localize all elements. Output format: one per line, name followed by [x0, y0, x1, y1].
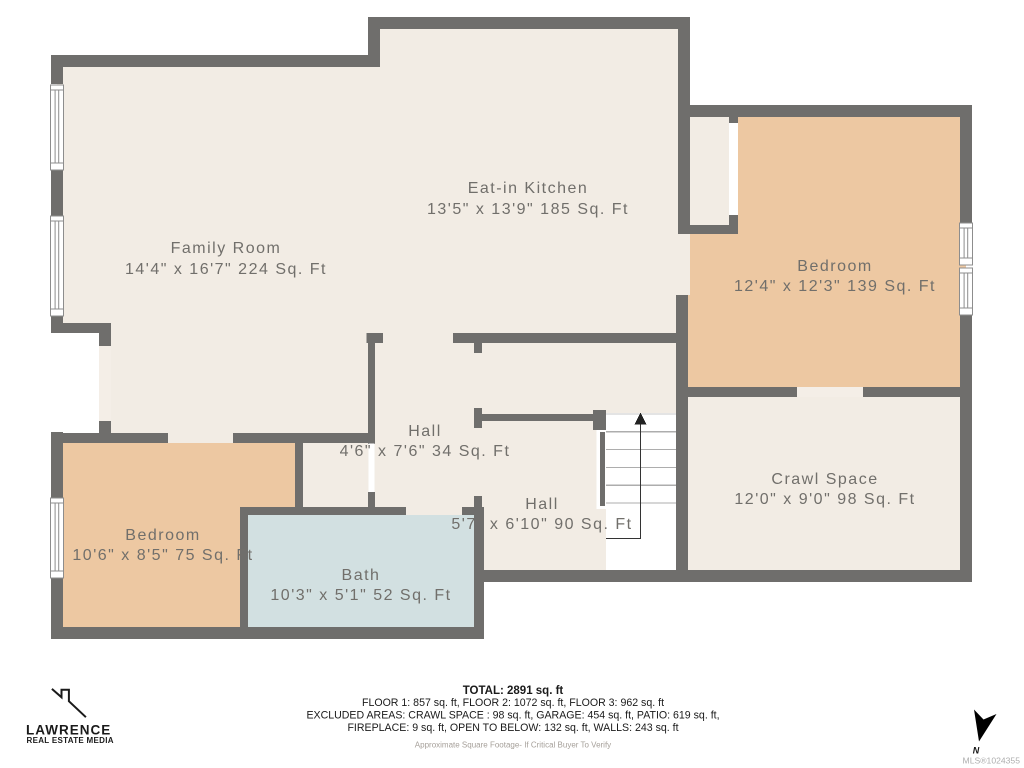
svg-text:12'4" x 12'3" 139 Sq. Ft: 12'4" x 12'3" 139 Sq. Ft — [734, 278, 936, 295]
svg-text:Eat-in Kitchen: Eat-in Kitchen — [468, 180, 589, 197]
svg-text:MLS®1024355: MLS®1024355 — [963, 756, 1021, 766]
svg-text:EXCLUDED AREAS: CRAWL SPACE :: EXCLUDED AREAS: CRAWL SPACE : 98 sq. ft,… — [306, 710, 719, 722]
svg-text:10'3" x 5'1" 52 Sq. Ft: 10'3" x 5'1" 52 Sq. Ft — [270, 587, 451, 604]
svg-text:Bedroom: Bedroom — [125, 527, 200, 544]
svg-text:Hall: Hall — [408, 423, 442, 440]
svg-text:Hall: Hall — [525, 496, 559, 513]
svg-text:TOTAL: 2891 sq. ft: TOTAL: 2891 sq. ft — [463, 685, 564, 697]
svg-text:FLOOR 1: 857 sq. ft, FLOOR 2:: FLOOR 1: 857 sq. ft, FLOOR 2: 1072 sq. f… — [362, 697, 664, 709]
svg-text:Bedroom: Bedroom — [797, 258, 872, 275]
svg-text:FIREPLACE: 9 sq. ft, OPEN TO B: FIREPLACE: 9 sq. ft, OPEN TO BELOW: 132 … — [347, 722, 678, 734]
svg-text:Family Room: Family Room — [171, 240, 282, 257]
svg-text:13'5" x 13'9" 185 Sq. Ft: 13'5" x 13'9" 185 Sq. Ft — [427, 201, 629, 218]
svg-text:12'0" x 9'0" 98 Sq. Ft: 12'0" x 9'0" 98 Sq. Ft — [734, 491, 915, 508]
svg-text:Approximate Square Footage- If: Approximate Square Footage- If Critical … — [415, 741, 611, 750]
svg-text:REAL ESTATE MEDIA: REAL ESTATE MEDIA — [27, 736, 114, 745]
svg-text:Crawl Space: Crawl Space — [771, 471, 878, 488]
svg-text:14'4" x 16'7" 224 Sq. Ft: 14'4" x 16'7" 224 Sq. Ft — [125, 261, 327, 278]
svg-text:10'6" x 8'5" 75 Sq. Ft: 10'6" x 8'5" 75 Sq. Ft — [72, 547, 253, 564]
svg-text:N: N — [973, 746, 980, 756]
svg-text:Bath: Bath — [342, 567, 381, 584]
svg-text:5'7" x 6'10" 90 Sq. Ft: 5'7" x 6'10" 90 Sq. Ft — [451, 516, 632, 533]
svg-text:4'6" x 7'6" 34 Sq. Ft: 4'6" x 7'6" 34 Sq. Ft — [340, 443, 511, 460]
